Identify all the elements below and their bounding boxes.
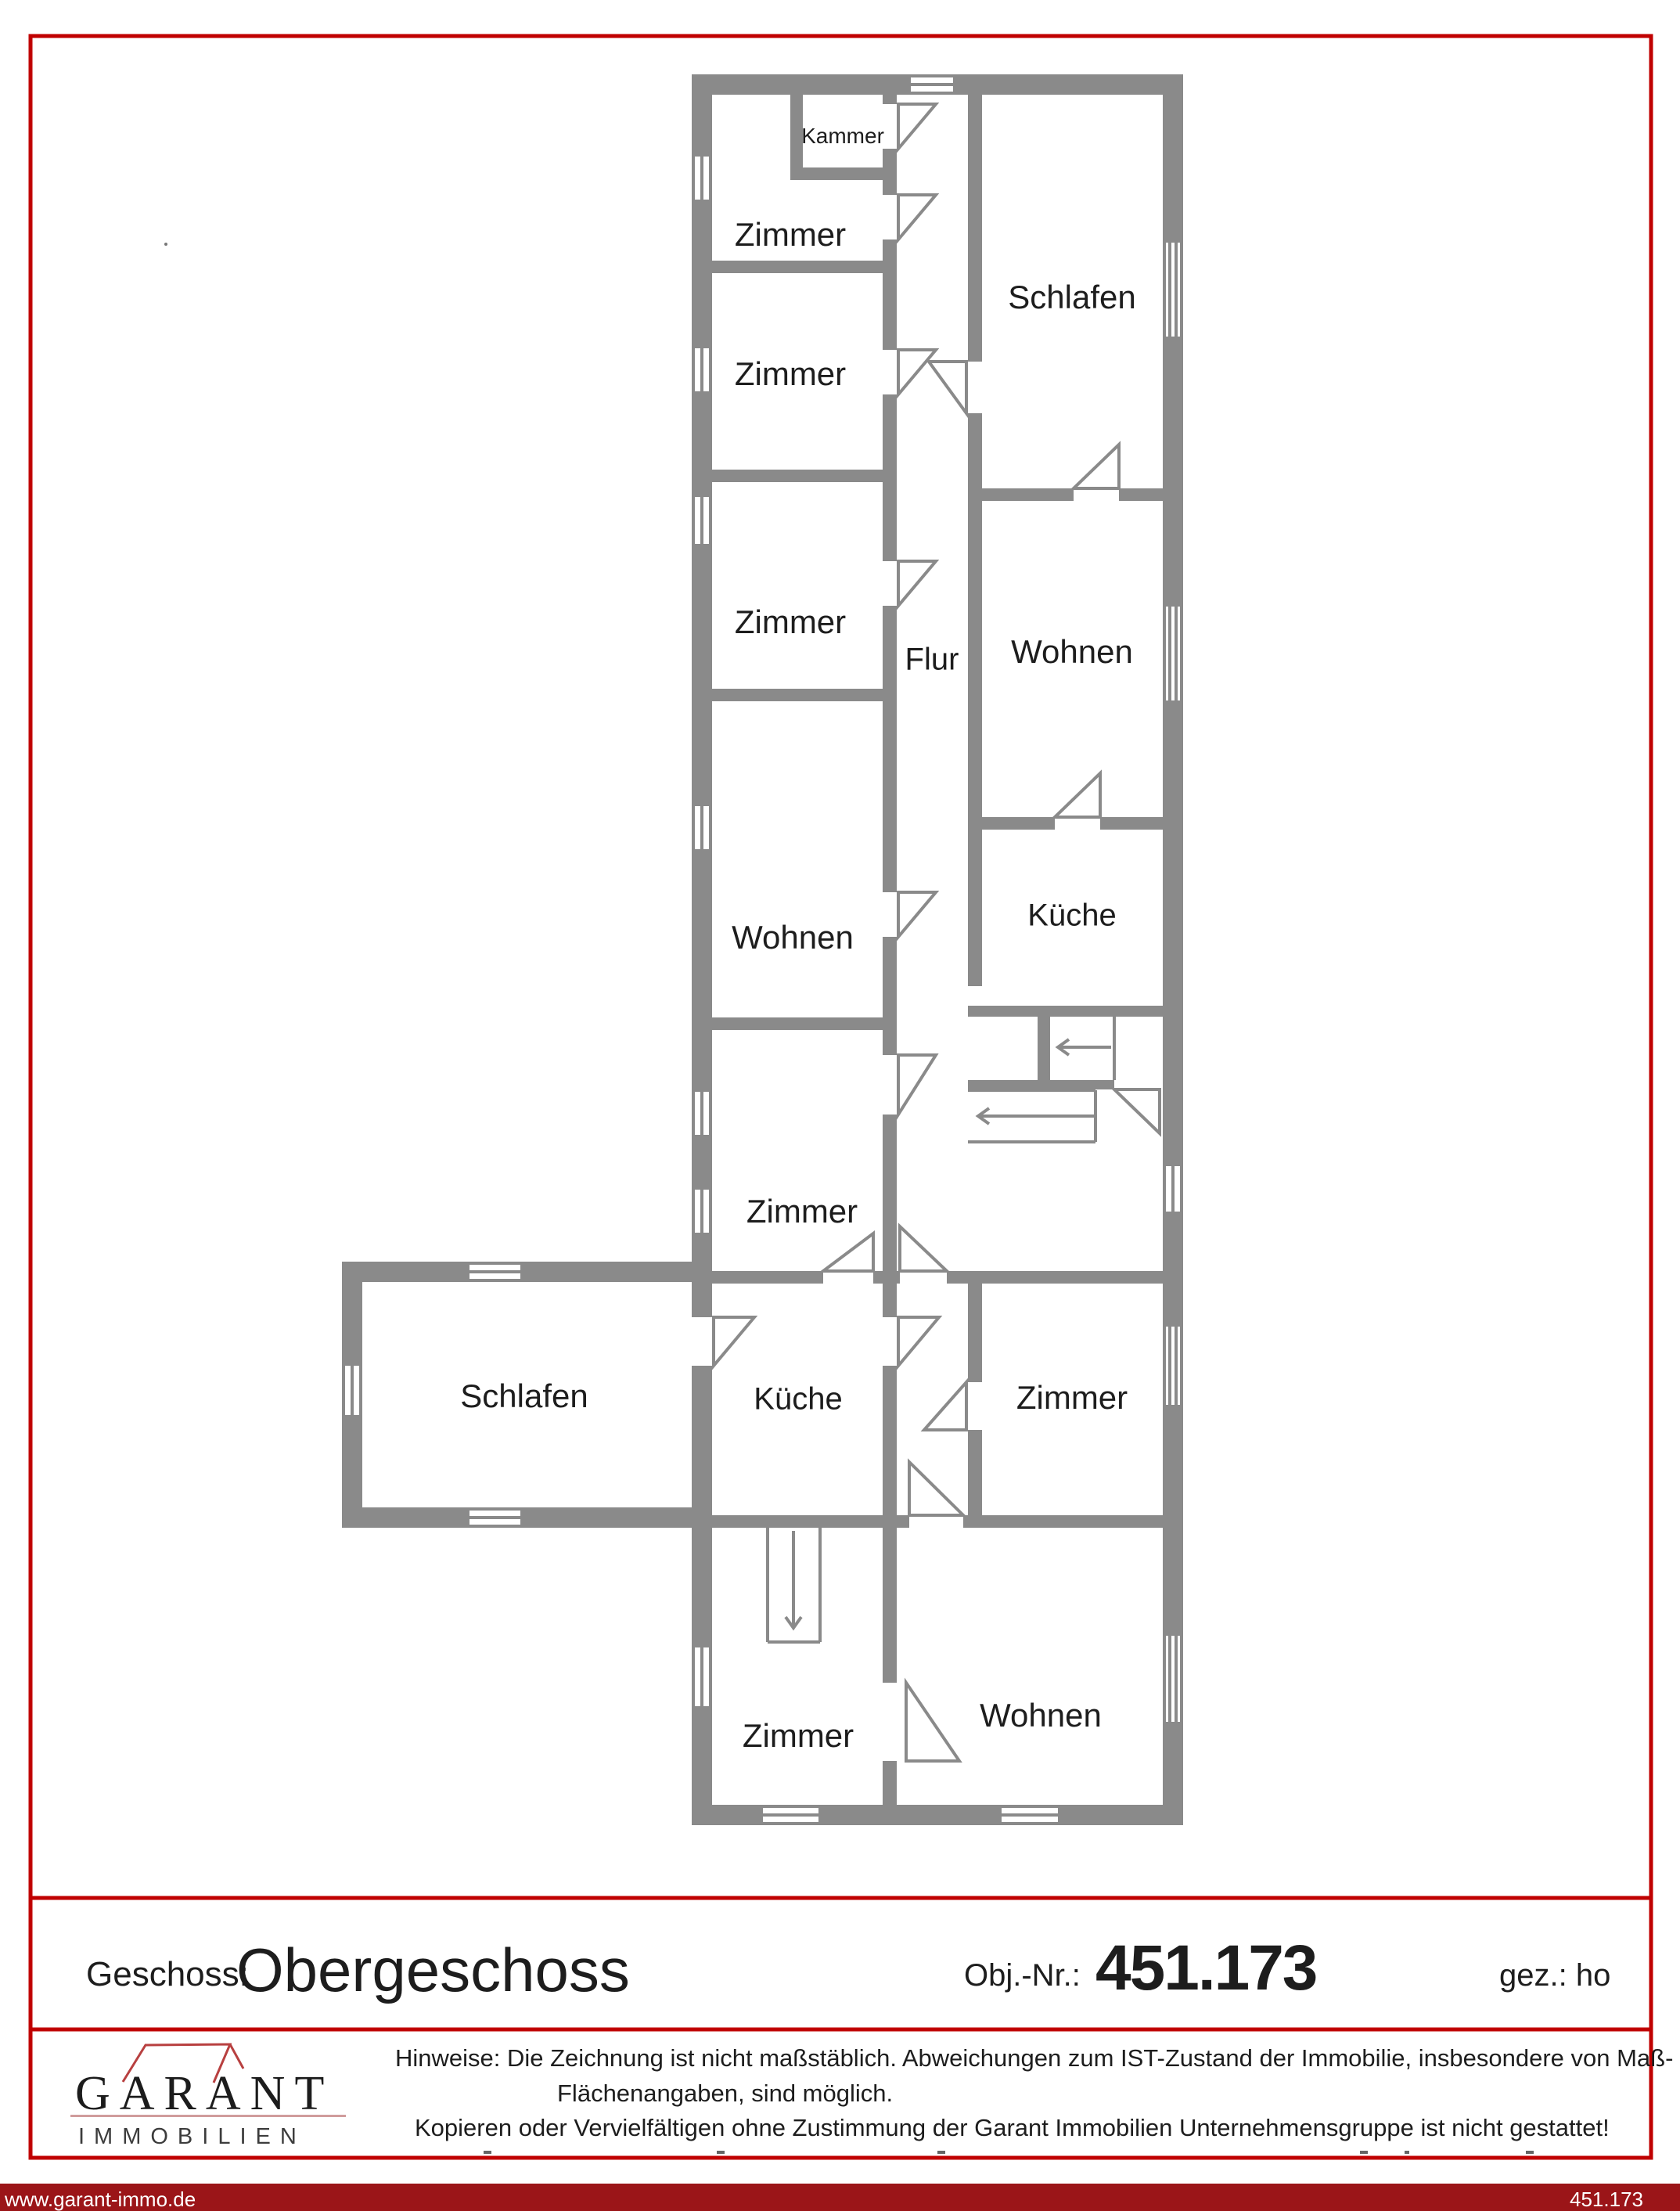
bottom-bar-website: www.garant-immo.de: [5, 2188, 196, 2211]
bottom-bar: [0, 2184, 1680, 2211]
room-label-kueche-right: Küche: [1027, 898, 1116, 934]
geschoss-value: Obergeschoss: [236, 1935, 630, 2006]
room-label-zimmer-br: Zimmer: [1016, 1379, 1128, 1417]
artifact-mark: [1526, 2151, 1534, 2154]
room-label-zimmer-3: Zimmer: [735, 603, 846, 641]
room-label-kueche-bottom: Küche: [754, 1382, 842, 1417]
room-label-zimmer-1: Zimmer: [735, 216, 846, 254]
hinweise-line-2: Flächenangaben, sind möglich.: [557, 2080, 893, 2108]
room-label-wohnen-left: Wohnen: [732, 919, 854, 956]
room-label-wohnen-bottom: Wohnen: [980, 1697, 1102, 1734]
page-border: [31, 36, 1651, 2158]
hinweise-line-1: Hinweise: Die Zeichnung ist nicht maßstä…: [395, 2044, 1680, 2072]
artifact-mark: [1360, 2151, 1368, 2154]
obj-nr-label: Obj.-Nr.:: [964, 1958, 1081, 1993]
obj-nr-value: 451.173: [1095, 1932, 1316, 2005]
floorplan-page: Kammer Zimmer Zimmer Zimmer Wohnen Zimme…: [0, 0, 1680, 2211]
artifact-mark: [937, 2151, 945, 2154]
room-label-zimmer-bottom: Zimmer: [743, 1717, 854, 1755]
room-label-wohnen-right: Wohnen: [1011, 633, 1133, 671]
stairs: [768, 1017, 1114, 1642]
geschoss-label: Geschoss:: [86, 1955, 249, 1994]
room-label-kammer: Kammer: [801, 124, 884, 149]
speck-artifact: [164, 243, 167, 246]
room-label-zimmer-4: Zimmer: [746, 1193, 858, 1230]
floorplan-drawing: [0, 0, 1680, 2211]
artifact-mark: [484, 2151, 491, 2154]
room-label-zimmer-2: Zimmer: [735, 355, 846, 393]
hinweise-line-3: Kopieren oder Vervielfältigen ohne Zusti…: [415, 2114, 1610, 2142]
logo-divider: [70, 2115, 346, 2117]
room-label-flur: Flur: [905, 643, 959, 678]
artifact-mark: [717, 2151, 725, 2154]
room-label-schlafen-annex: Schlafen: [460, 1377, 588, 1415]
room-label-schlafen-top: Schlafen: [1008, 279, 1135, 316]
bottom-bar-object-number: 451.173: [1570, 2188, 1643, 2211]
logo-division: IMMOBILIEN: [78, 2124, 306, 2150]
artifact-mark: [1405, 2151, 1409, 2154]
gez-label: gez.: ho: [1499, 1958, 1610, 1993]
logo-brand: GARANT: [75, 2066, 333, 2122]
